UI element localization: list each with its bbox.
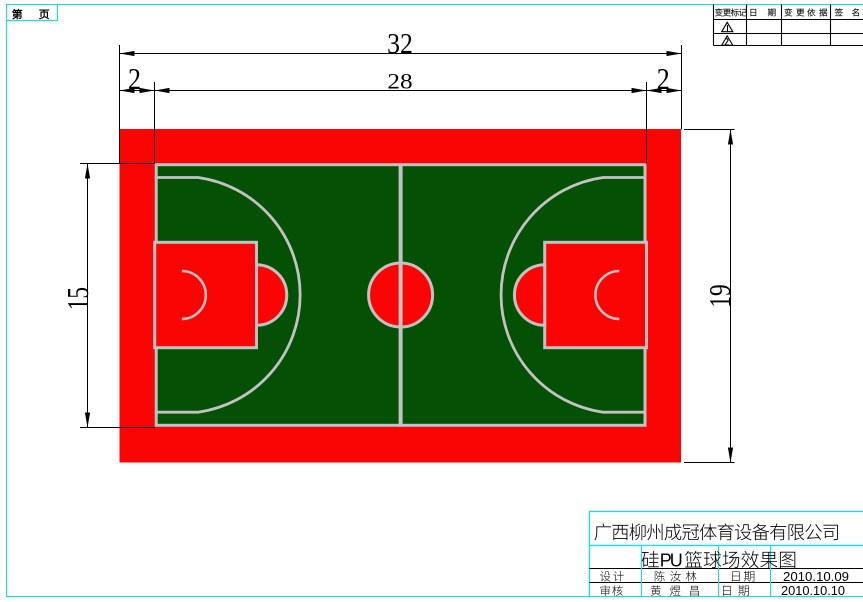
svg-text:2: 2	[657, 62, 670, 97]
svg-text:19: 19	[703, 284, 737, 307]
svg-text:2010.10.10: 2010.10.10	[781, 583, 845, 598]
svg-text:2: 2	[128, 62, 141, 97]
svg-text:32: 32	[387, 28, 413, 59]
svg-text:2010.10.09: 2010.10.09	[783, 569, 849, 584]
svg-text:15: 15	[61, 287, 95, 310]
svg-text:28: 28	[387, 69, 412, 93]
svg-text:PU: PU	[660, 551, 683, 571]
